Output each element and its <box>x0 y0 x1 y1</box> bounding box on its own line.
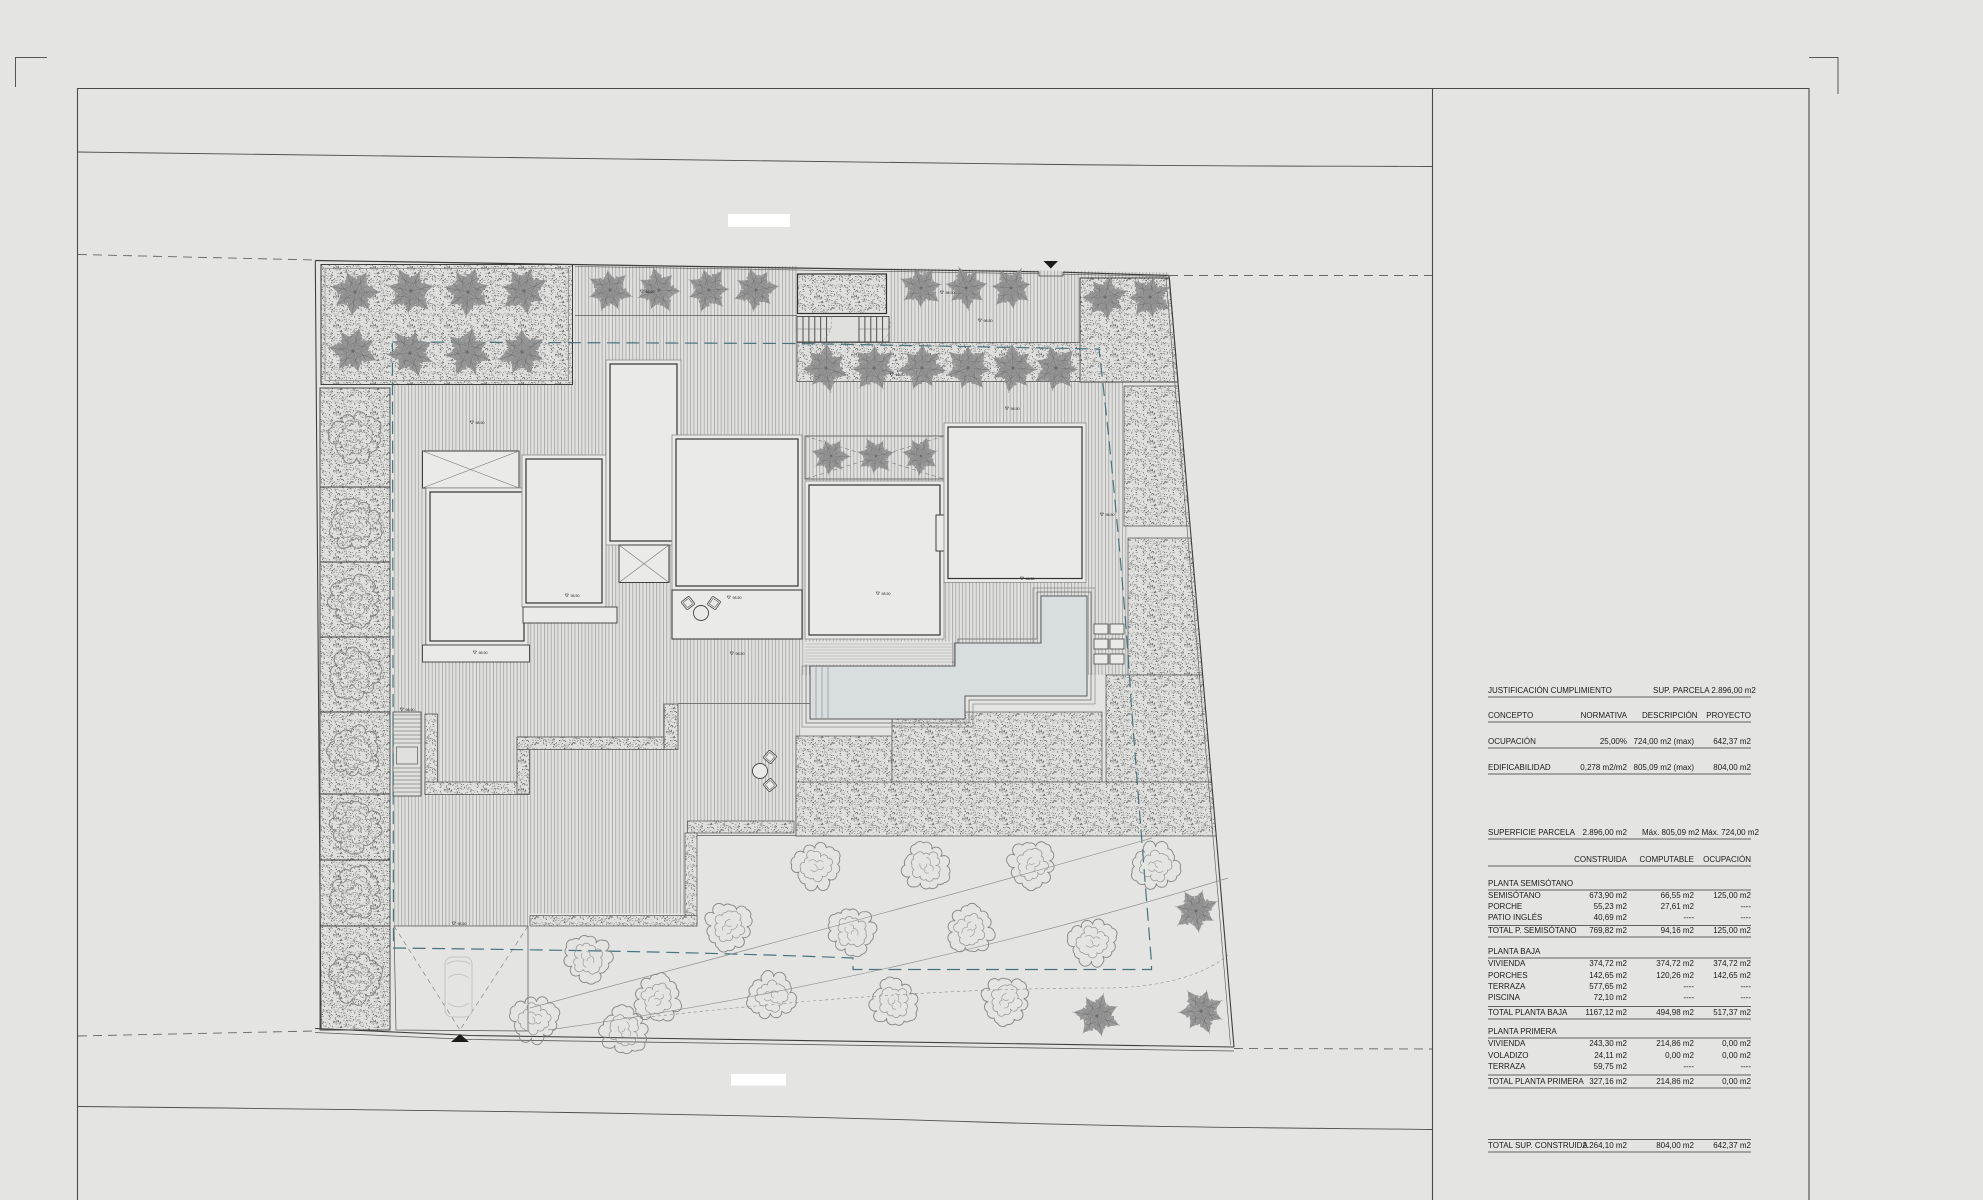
svg-text:JUSTIFICACIÓN CUMPLIMIENTO: JUSTIFICACIÓN CUMPLIMIENTO <box>1488 686 1612 695</box>
svg-text:PLANTA SEMISÓTANO: PLANTA SEMISÓTANO <box>1488 879 1573 888</box>
svg-text:PISCINA: PISCINA <box>1488 993 1521 1002</box>
svg-text:Máx. 805,09 m2 Máx. 724,00 m2: Máx. 805,09 m2 Máx. 724,00 m2 <box>1642 828 1760 837</box>
svg-text:494,98 m2: 494,98 m2 <box>1656 1008 1694 1017</box>
svg-text:214,86 m2: 214,86 m2 <box>1656 1039 1694 1048</box>
svg-text:NORMATIVA: NORMATIVA <box>1581 711 1628 720</box>
svg-text:CONSTRUIDA: CONSTRUIDA <box>1574 855 1628 864</box>
svg-text:COMPUTABLE: COMPUTABLE <box>1639 855 1694 864</box>
svg-text:327,16 m2: 327,16 m2 <box>1589 1077 1627 1086</box>
svg-text:0,00 m2: 0,00 m2 <box>1722 1051 1751 1060</box>
svg-text:577,65 m2: 577,65 m2 <box>1589 982 1627 991</box>
svg-text:VOLADIZO: VOLADIZO <box>1488 1051 1528 1060</box>
svg-text:----: ---- <box>1683 1062 1694 1071</box>
svg-text:TOTAL PLANTA PRIMERA: TOTAL PLANTA PRIMERA <box>1488 1077 1584 1086</box>
svg-text:----: ---- <box>1683 913 1694 922</box>
svg-text:PLANTA BAJA: PLANTA BAJA <box>1488 947 1541 956</box>
svg-text:EDIFICABILIDAD: EDIFICABILIDAD <box>1488 763 1551 772</box>
svg-text:2.264,10 m2: 2.264,10 m2 <box>1583 1141 1628 1150</box>
svg-text:214,86 m2: 214,86 m2 <box>1656 1077 1694 1086</box>
svg-text:----: ---- <box>1740 982 1751 991</box>
svg-text:TERRAZA: TERRAZA <box>1488 982 1526 991</box>
svg-text:724,00 m2 (max): 724,00 m2 (max) <box>1634 737 1695 746</box>
svg-text:769,82 m2: 769,82 m2 <box>1589 926 1627 935</box>
svg-text:374,72 m2: 374,72 m2 <box>1589 959 1627 968</box>
svg-text:2.896,00 m2: 2.896,00 m2 <box>1583 828 1628 837</box>
svg-text:----: ---- <box>1740 993 1751 1002</box>
svg-text:0,00 m2: 0,00 m2 <box>1722 1039 1751 1048</box>
svg-text:55,23 m2: 55,23 m2 <box>1594 902 1628 911</box>
svg-text:804,00 m2: 804,00 m2 <box>1656 1141 1694 1150</box>
svg-text:374,72 m2: 374,72 m2 <box>1656 959 1694 968</box>
svg-text:804,00 m2: 804,00 m2 <box>1713 763 1751 772</box>
svg-text:66,55 m2: 66,55 m2 <box>1661 891 1695 900</box>
svg-text:OCUPACIÓN: OCUPACIÓN <box>1488 737 1536 746</box>
svg-text:PORCHES: PORCHES <box>1488 971 1528 980</box>
svg-text:TOTAL SUP. CONSTRUIDA: TOTAL SUP. CONSTRUIDA <box>1488 1141 1588 1150</box>
svg-text:SEMISÓTANO: SEMISÓTANO <box>1488 891 1541 900</box>
svg-text:374,72 m2: 374,72 m2 <box>1713 959 1751 968</box>
svg-text:PROYECTO: PROYECTO <box>1706 711 1751 720</box>
svg-text:72,10 m2: 72,10 m2 <box>1594 993 1628 1002</box>
svg-text:40,69 m2: 40,69 m2 <box>1594 913 1628 922</box>
svg-text:642,37 m2: 642,37 m2 <box>1713 1141 1751 1150</box>
svg-text:PLANTA PRIMERA: PLANTA PRIMERA <box>1488 1027 1557 1036</box>
svg-text:517,37 m2: 517,37 m2 <box>1713 1008 1751 1017</box>
svg-text:27,61 m2: 27,61 m2 <box>1661 902 1695 911</box>
svg-text:1167,12 m2: 1167,12 m2 <box>1585 1008 1627 1017</box>
svg-text:SUPERFICIE PARCELA: SUPERFICIE PARCELA <box>1488 828 1576 837</box>
svg-text:59,75 m2: 59,75 m2 <box>1594 1062 1628 1071</box>
svg-text:----: ---- <box>1740 902 1751 911</box>
svg-text:----: ---- <box>1740 1062 1751 1071</box>
svg-text:----: ---- <box>1683 993 1694 1002</box>
svg-text:25,00%: 25,00% <box>1600 737 1627 746</box>
svg-text:125,00 m2: 125,00 m2 <box>1713 926 1751 935</box>
svg-text:SUP. PARCELA 2.896,00 m2: SUP. PARCELA 2.896,00 m2 <box>1653 686 1756 695</box>
svg-text:VIVIENDA: VIVIENDA <box>1488 1039 1526 1048</box>
svg-text:94,16 m2: 94,16 m2 <box>1661 926 1695 935</box>
svg-text:0,00 m2: 0,00 m2 <box>1665 1051 1694 1060</box>
svg-text:PATIO INGLÉS: PATIO INGLÉS <box>1488 913 1542 922</box>
svg-text:OCUPACIÓN: OCUPACIÓN <box>1703 855 1751 864</box>
svg-text:642,37 m2: 642,37 m2 <box>1713 737 1751 746</box>
svg-text:----: ---- <box>1683 982 1694 991</box>
svg-text:125,00 m2: 125,00 m2 <box>1713 891 1751 900</box>
svg-text:805,09 m2 (max): 805,09 m2 (max) <box>1634 763 1695 772</box>
svg-text:120,26 m2: 120,26 m2 <box>1656 971 1694 980</box>
svg-text:142,65 m2: 142,65 m2 <box>1713 971 1751 980</box>
svg-text:673,90 m2: 673,90 m2 <box>1589 891 1627 900</box>
svg-text:DESCRIPCIÓN: DESCRIPCIÓN <box>1642 711 1698 720</box>
svg-text:0,278 m2/m2: 0,278 m2/m2 <box>1580 763 1627 772</box>
svg-text:TOTAL P. SEMISÓTANO: TOTAL P. SEMISÓTANO <box>1488 926 1576 935</box>
svg-text:TOTAL PLANTA BAJA: TOTAL PLANTA BAJA <box>1488 1008 1568 1017</box>
svg-text:PORCHE: PORCHE <box>1488 902 1522 911</box>
svg-text:243,30 m2: 243,30 m2 <box>1589 1039 1627 1048</box>
svg-text:0,00 m2: 0,00 m2 <box>1722 1077 1751 1086</box>
svg-text:CONCEPTO: CONCEPTO <box>1488 711 1533 720</box>
svg-text:TERRAZA: TERRAZA <box>1488 1062 1526 1071</box>
svg-text:142,65 m2: 142,65 m2 <box>1589 971 1627 980</box>
svg-text:----: ---- <box>1740 913 1751 922</box>
svg-text:24,11 m2: 24,11 m2 <box>1594 1051 1627 1060</box>
svg-text:VIVIENDA: VIVIENDA <box>1488 959 1526 968</box>
